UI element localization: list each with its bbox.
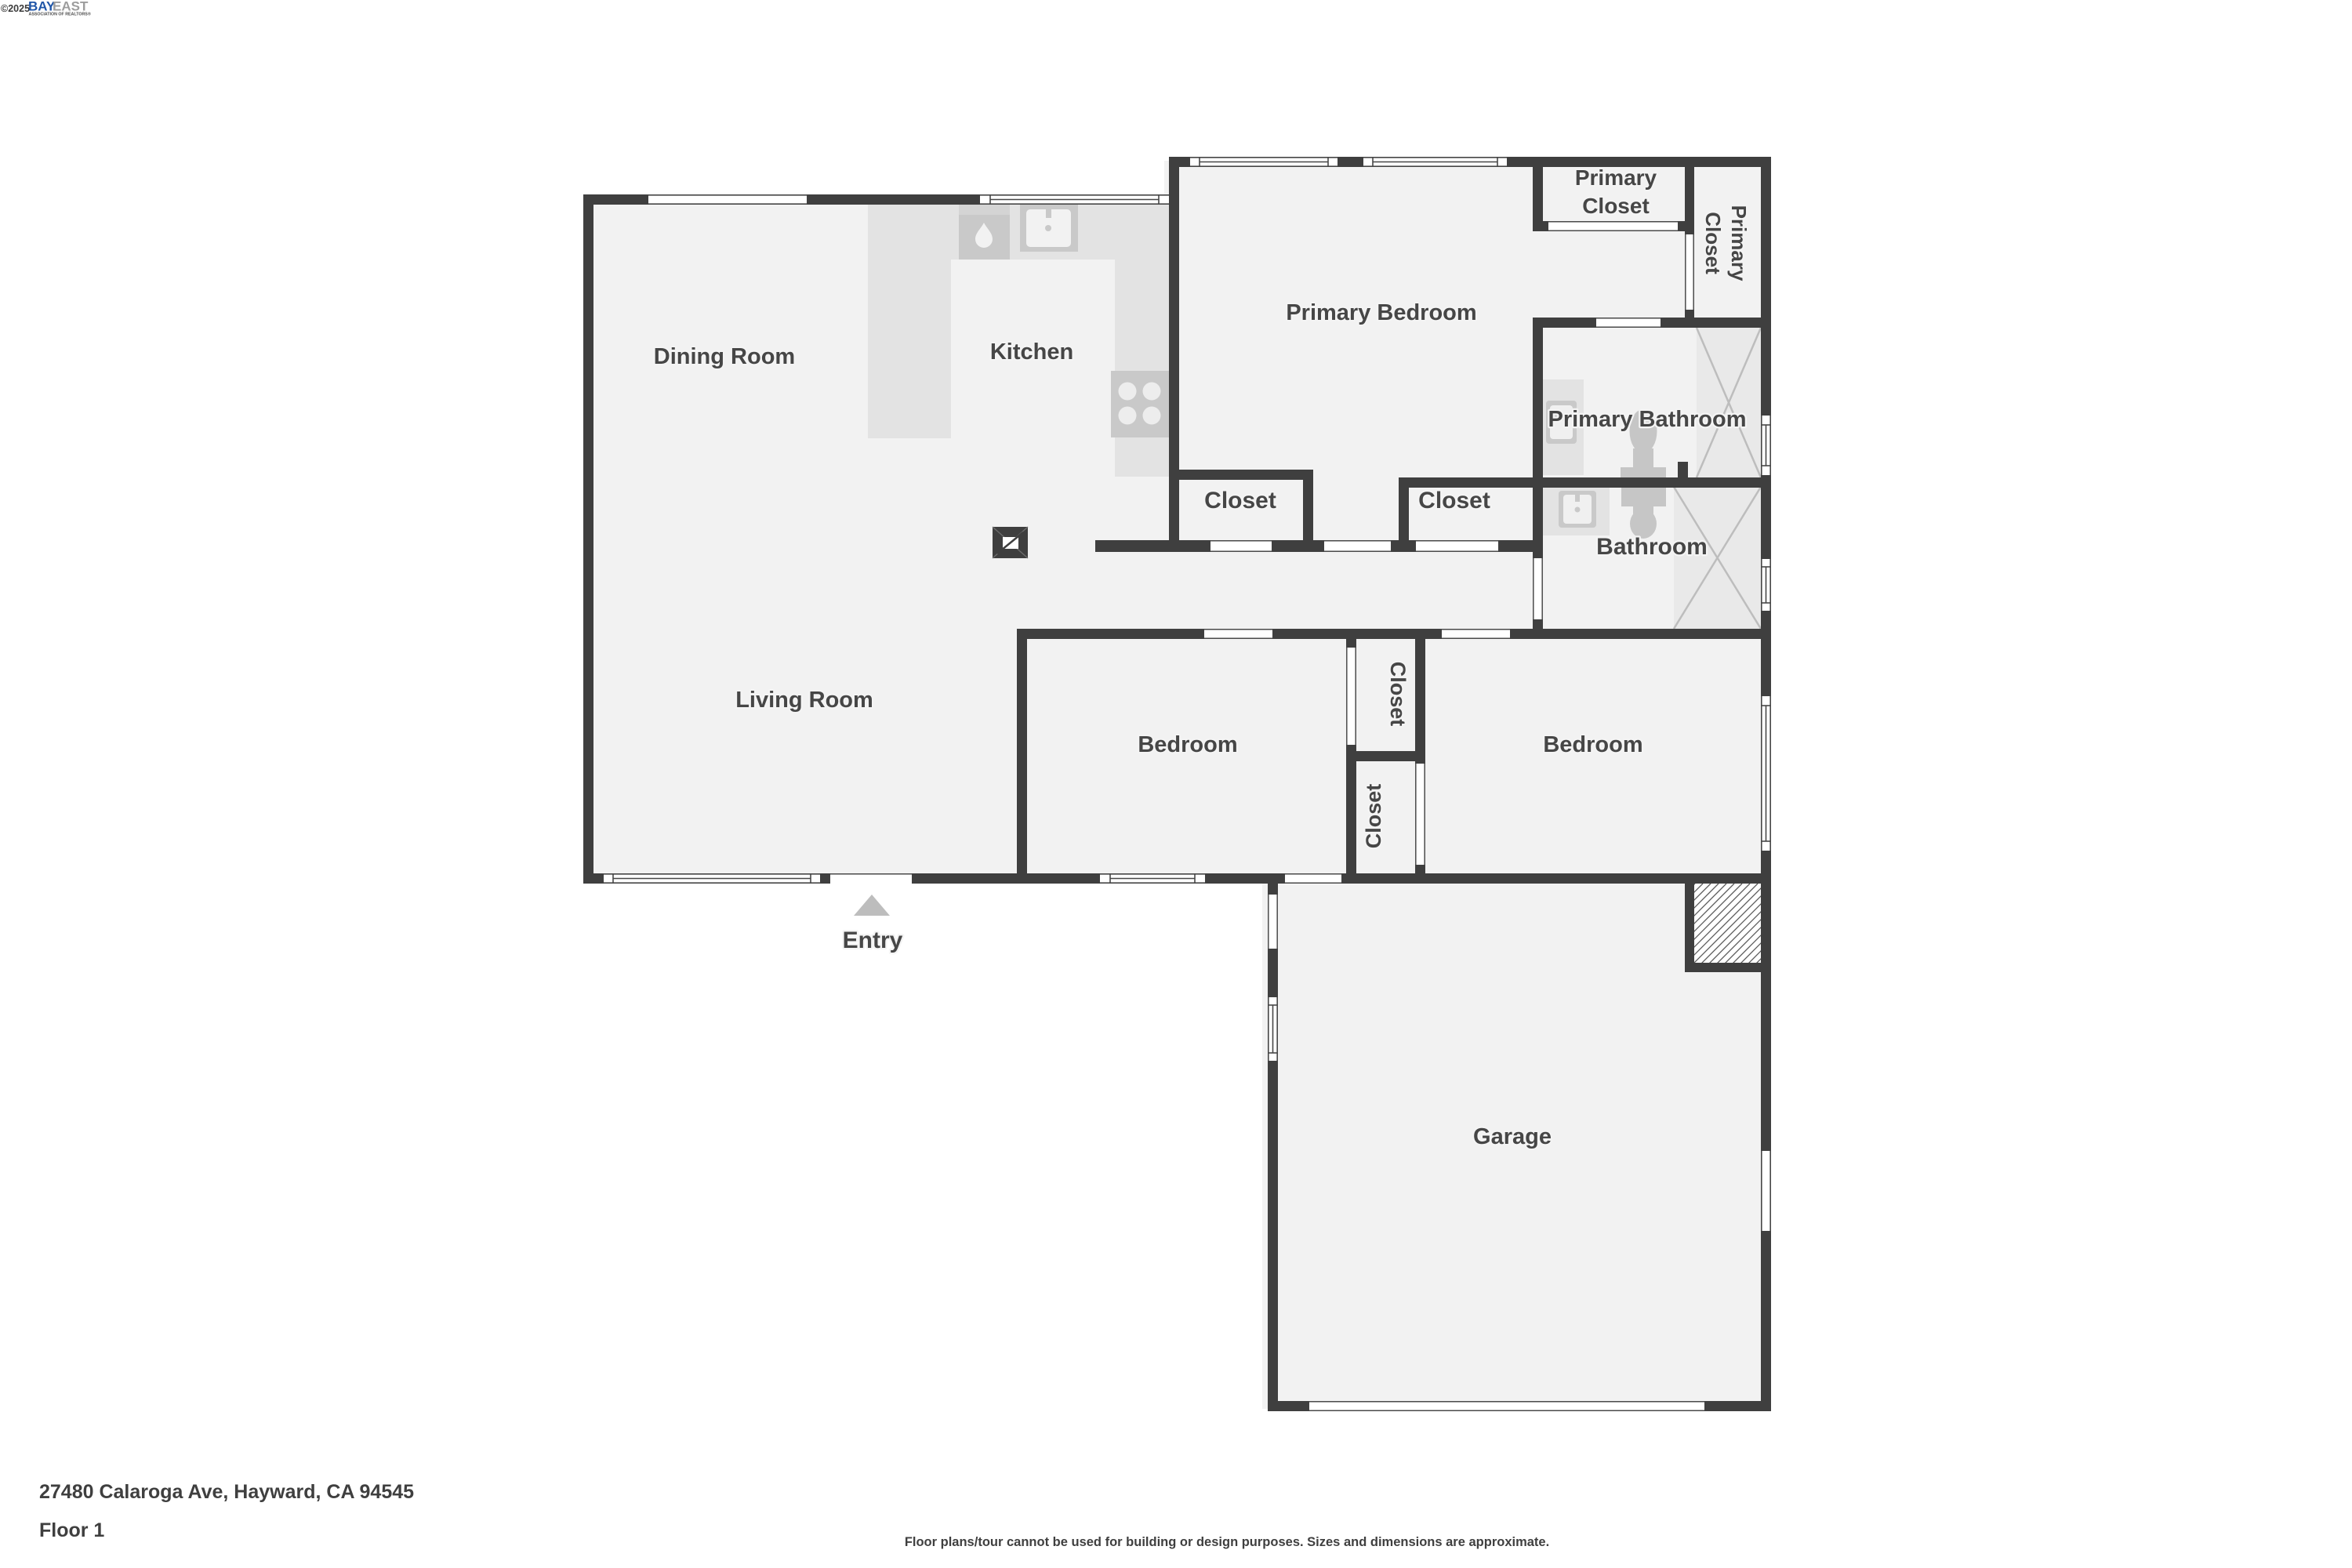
svg-text:Floor plans/tour cannot be use: Floor plans/tour cannot be used for buil… (905, 1535, 1549, 1549)
svg-text:27480 Calaroga Ave, Hayward, C: 27480 Calaroga Ave, Hayward, CA 94545 (39, 1481, 414, 1503)
svg-text:Floor 1: Floor 1 (39, 1519, 104, 1541)
svg-text:Closet: Closet (1386, 662, 1410, 727)
svg-text:Closet: Closet (1204, 488, 1276, 514)
svg-text:Entry: Entry (843, 927, 903, 953)
svg-text:Primary Bedroom: Primary Bedroom (1286, 300, 1476, 325)
svg-text:Closet: Closet (1418, 488, 1490, 514)
svg-text:Closet: Closet (1701, 212, 1725, 274)
svg-text:Dining Room: Dining Room (654, 344, 795, 369)
svg-text:Garage: Garage (1473, 1124, 1552, 1149)
svg-text:Primary: Primary (1727, 205, 1751, 281)
svg-text:Living Room: Living Room (735, 688, 873, 713)
svg-text:Primary Bathroom: Primary Bathroom (1548, 407, 1746, 432)
svg-text:Bedroom: Bedroom (1138, 732, 1237, 757)
svg-text:Closet: Closet (1362, 784, 1385, 849)
svg-text:Bathroom: Bathroom (1596, 534, 1708, 560)
svg-text:Kitchen: Kitchen (990, 339, 1073, 365)
svg-text:Closet: Closet (1582, 194, 1650, 218)
svg-text:Bedroom: Bedroom (1543, 732, 1642, 757)
svg-text:Primary: Primary (1575, 165, 1657, 190)
svg-text:©2025: ©2025 (1, 3, 30, 14)
svg-text:ASSOCIATION OF REALTORS®: ASSOCIATION OF REALTORS® (29, 12, 91, 17)
